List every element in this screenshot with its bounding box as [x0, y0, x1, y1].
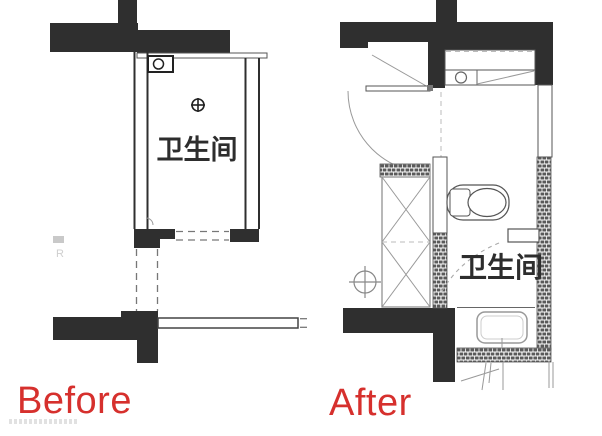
plans-drawing: 卫生间 R	[0, 0, 602, 436]
before-room-label: 卫生间	[157, 135, 238, 165]
after-caption: After	[329, 382, 412, 425]
after-plan: 卫生间	[340, 0, 553, 390]
door-hinge	[427, 85, 433, 91]
before-caption: Before	[17, 380, 132, 423]
before-structural-walls	[50, 0, 267, 363]
after-room-label: 卫生间	[459, 252, 543, 283]
before-plan: 卫生间 R	[50, 0, 311, 363]
watermark-letter: R	[56, 248, 64, 260]
washing-machine-icon	[445, 70, 535, 85]
beam-outline	[158, 318, 311, 328]
watermark	[9, 419, 77, 424]
entry-door-swing	[348, 55, 441, 173]
floor-drain-icon-after	[349, 266, 381, 298]
shower-cabinet	[380, 164, 430, 307]
pipe-sketch	[461, 362, 553, 390]
door-jamb-stub	[508, 229, 539, 242]
toilet-icon	[447, 185, 509, 220]
floor-drain-icon	[191, 98, 205, 112]
floor-plan-comparison: 卫生间 R	[0, 0, 602, 436]
storage-cabinet	[445, 50, 535, 70]
watermark-block	[53, 236, 64, 243]
wash-basin-icon	[457, 308, 535, 349]
water-heater-box-icon	[148, 56, 173, 72]
